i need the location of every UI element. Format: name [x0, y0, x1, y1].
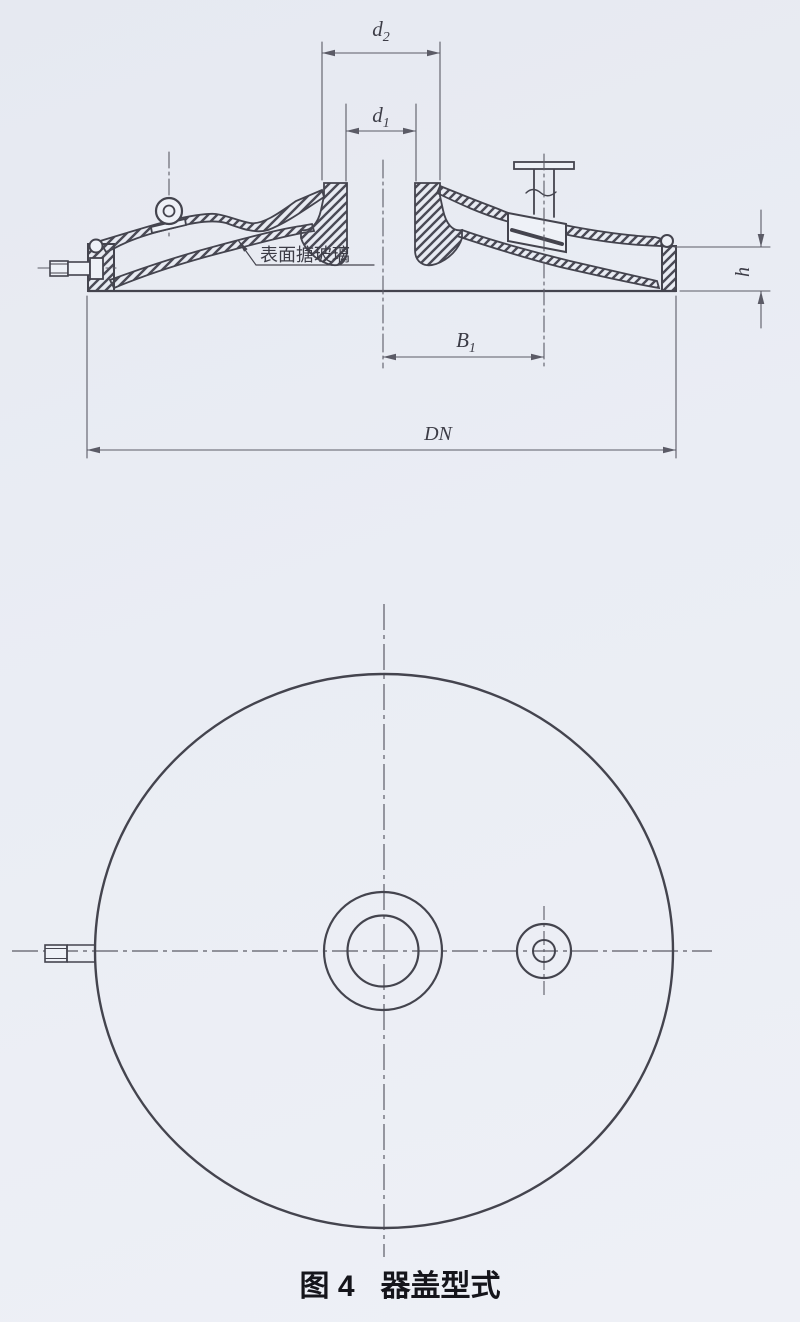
dimension-d2: d2: [322, 17, 440, 180]
dimension-DN: DN: [87, 296, 676, 458]
stud-shank: [68, 262, 90, 275]
dimension-DN-label: DN: [423, 423, 453, 445]
svg-text:d2: d2: [372, 17, 390, 45]
vessel-cover-drawing: 表面搪玻璃 d2 d1: [0, 0, 800, 1322]
dimension-h-label: h: [732, 267, 754, 277]
dimension-h: h: [674, 210, 770, 328]
figure-number: 图 4: [299, 1270, 354, 1303]
bolt-break-mark: [526, 190, 556, 196]
stud-boss: [90, 258, 103, 279]
surface-note-label: 表面搪玻璃: [260, 245, 350, 265]
stud-thread: [50, 261, 68, 276]
grounding-stud-plan: [45, 945, 95, 962]
plan-view: [12, 604, 712, 1257]
dimension-B1: B1: [383, 328, 544, 360]
dimension-d1: d1: [346, 103, 416, 181]
rim-bead-left: [90, 240, 103, 253]
lug-eye-outer: [156, 198, 182, 224]
section-view: 表面搪玻璃 d2 d1: [38, 17, 770, 458]
svg-text:d1: d1: [372, 103, 390, 131]
rim-bead-right: [661, 235, 673, 247]
cover-shell-upper-left: [100, 190, 324, 252]
figure-caption: 图 4器盖型式: [299, 1270, 500, 1303]
stud-thread-plan: [45, 945, 67, 962]
svg-text:B1: B1: [456, 328, 476, 356]
scanned-drawing-page: 表面搪玻璃 d2 d1: [0, 0, 800, 1322]
figure-title: 器盖型式: [380, 1270, 501, 1303]
flange-rim-right: [662, 246, 676, 291]
